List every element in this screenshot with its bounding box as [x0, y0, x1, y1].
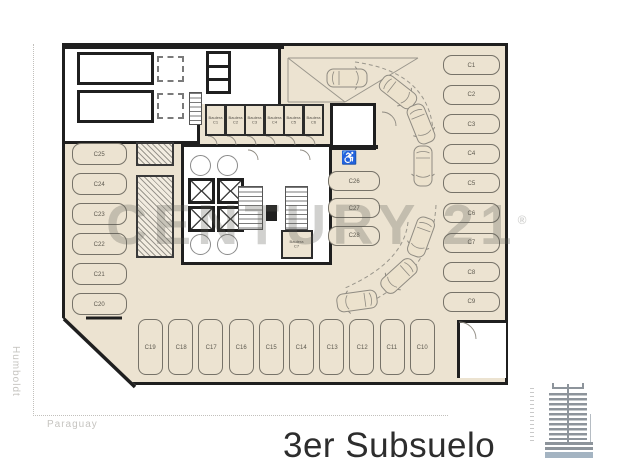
- parking-spot-label: C26: [348, 178, 359, 185]
- parking-spot: C26: [328, 171, 380, 191]
- street-label-paraguay: Paraguay: [47, 419, 98, 430]
- tank-room-2: [77, 90, 154, 123]
- storage-room-label: Baulera C6: [307, 115, 321, 124]
- parking-spot-label: C16: [236, 344, 247, 351]
- building-roof-hook-left: [552, 383, 554, 389]
- parking-spot: C19: [138, 319, 163, 375]
- parking-spot-label: C14: [296, 344, 307, 351]
- parking-spot: C9: [443, 292, 500, 312]
- parking-spot: C7: [443, 233, 500, 253]
- building-edge-line: [590, 414, 591, 442]
- parking-spot-label: C4: [468, 150, 476, 157]
- parking-spot-label: C5: [468, 180, 476, 187]
- fan-circle: [190, 155, 211, 176]
- storage-room: Baulera C3: [244, 104, 265, 136]
- duct-stack: [206, 51, 231, 94]
- storage-room-core: Baulera C7: [281, 230, 313, 259]
- parking-spot: C27: [328, 198, 380, 218]
- parking-spot: C5: [443, 173, 500, 193]
- parking-spot: C17: [198, 319, 223, 375]
- parking-spot: C28: [328, 226, 380, 246]
- parking-spot: C11: [380, 319, 405, 375]
- elevator-shaft: [188, 178, 215, 204]
- building-roof-bar: [554, 387, 582, 389]
- stair-flight-2: [285, 186, 308, 230]
- parking-spot: C12: [349, 319, 374, 375]
- building-base-highlight: [545, 452, 593, 458]
- parking-spot-label: C23: [94, 211, 105, 218]
- fan-circle: [217, 234, 238, 255]
- storage-room: Baulera C1: [205, 104, 226, 136]
- service-ladder: [189, 92, 202, 125]
- storage-room: Baulera C6: [303, 104, 324, 136]
- accessible-parking-icon: ♿: [341, 150, 357, 166]
- parking-spot: C25: [72, 143, 127, 165]
- storage-room-label: Baulera C5: [287, 115, 301, 124]
- building-roof-hook-right: [582, 383, 584, 389]
- parking-spot: C18: [168, 319, 193, 375]
- parking-spot-label: C22: [94, 241, 105, 248]
- shaft-box-1: [157, 56, 184, 82]
- parking-spot: C2: [443, 85, 500, 105]
- elevator-shaft: [188, 206, 215, 232]
- parking-spot-label: C6: [468, 210, 476, 217]
- storage-room-label: Baulera C1: [209, 115, 223, 124]
- parking-spot-label: C18: [175, 344, 186, 351]
- parking-spot: C24: [72, 173, 127, 195]
- parking-spot-label: C9: [468, 298, 476, 305]
- parking-spot: C22: [72, 233, 127, 255]
- stair-flight-1: [238, 186, 263, 230]
- parking-spot-label: C1: [468, 62, 476, 69]
- parking-spot-label: C13: [326, 344, 337, 351]
- stair-core-wall: [266, 205, 277, 221]
- fan-circle: [190, 234, 211, 255]
- parking-spot-label: C24: [94, 181, 105, 188]
- parking-spot: C3: [443, 114, 500, 134]
- parking-spot: C6: [443, 203, 500, 223]
- parking-spot-label: C10: [417, 344, 428, 351]
- building-floors: [549, 393, 587, 440]
- parking-spot-label: C2: [468, 91, 476, 98]
- floorplan-canvas: Baulera C7 ♿ Baulera C1 Baulera C2 Baule…: [0, 0, 619, 466]
- parking-spot-label: C3: [468, 121, 476, 128]
- parking-spot: C15: [259, 319, 284, 375]
- ventilation-shaft-large: [136, 175, 174, 258]
- parking-spot-label: C11: [387, 344, 398, 351]
- parking-spot: C1: [443, 55, 500, 75]
- storage-room-label: Baulera C7: [290, 240, 304, 249]
- storage-room-label: Baulera C4: [267, 115, 281, 124]
- parking-spot-label: C27: [348, 205, 359, 212]
- parking-spot: C20: [72, 293, 127, 315]
- fan-circle: [217, 155, 238, 176]
- storage-room: Baulera C4: [264, 104, 285, 136]
- parking-spot-label: C8: [468, 269, 476, 276]
- parking-spot-label: C15: [266, 344, 277, 351]
- parking-spot-label: C28: [348, 232, 359, 239]
- floor-scale-ticks: [530, 388, 534, 442]
- storage-room: Baulera C5: [283, 104, 304, 136]
- parking-spot: C21: [72, 263, 127, 285]
- building-elevation-icon: [538, 374, 602, 464]
- parking-spot: C16: [229, 319, 254, 375]
- ventilation-shaft-small: [136, 142, 174, 166]
- storage-room-label: Baulera C3: [248, 115, 262, 124]
- building-base-slab-1: [545, 442, 593, 445]
- parking-spot-label: C19: [145, 344, 156, 351]
- parking-spot-label: C12: [356, 344, 367, 351]
- floor-title: 3er Subsuelo: [283, 426, 495, 466]
- parking-spot-label: C20: [94, 301, 105, 308]
- parking-spot-label: C21: [94, 271, 105, 278]
- parking-spot-label: C25: [94, 151, 105, 158]
- parking-spot: C8: [443, 262, 500, 282]
- parking-spot-label: C17: [205, 344, 216, 351]
- parking-spot: C14: [289, 319, 314, 375]
- parking-spot: C23: [72, 203, 127, 225]
- storage-room: Baulera C2: [225, 104, 246, 136]
- parking-spot: C10: [410, 319, 435, 375]
- parking-spot-label: C7: [468, 239, 476, 246]
- street-label-humboldt: Humboldt: [10, 346, 21, 397]
- storage-room-label: Baulera C2: [228, 115, 242, 124]
- shaft-box-2: [157, 93, 184, 119]
- parking-spot: C13: [319, 319, 344, 375]
- building-base-slab-2: [545, 447, 593, 450]
- parking-spot: C4: [443, 144, 500, 164]
- tank-room-1: [77, 52, 154, 85]
